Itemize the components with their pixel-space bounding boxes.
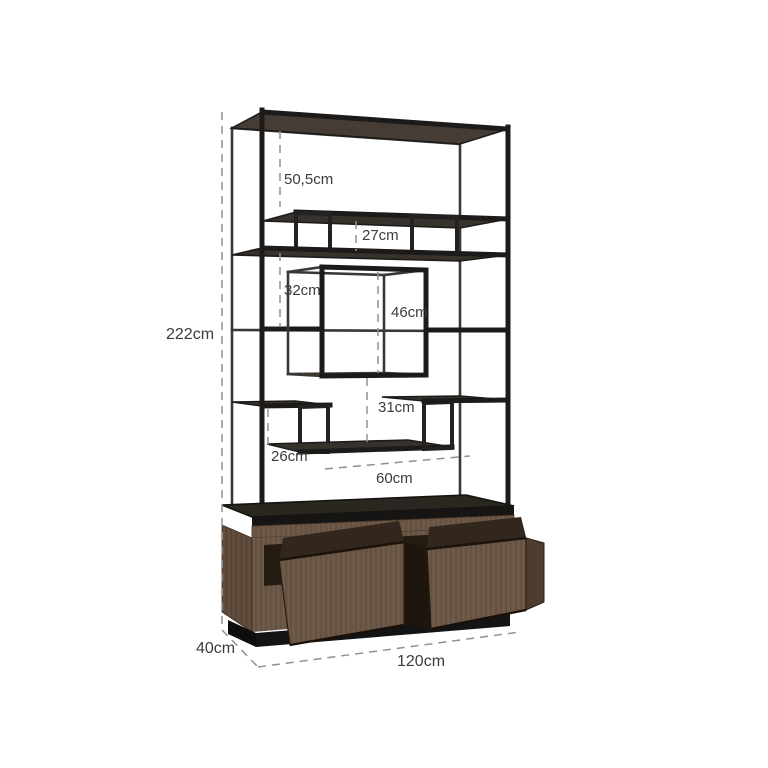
dim-label-below-cube: 31cm [378,399,415,416]
dim-label-shelf-width: 60cm [376,470,413,487]
dim-label-middle-opening: 32cm [284,282,321,299]
right-drawer-side [526,538,544,610]
right-platform-edge [424,400,508,401]
dim-label-top-opening: 50,5cm [284,171,333,188]
cube-front [322,267,426,376]
cabinet-left-side [222,525,252,632]
product-dimension-diagram: 222cm 50,5cm 27cm 32cm 46cm 31cm 26cm 60… [0,0,768,768]
dim-shelf-width-line [325,456,470,469]
furniture-illustration: 222cm 50,5cm 27cm 32cm 46cm 31cm 26cm 60… [0,0,768,768]
dim-label-width: 120cm [397,653,445,670]
lower-right-support [424,402,452,449]
dim-label-height: 222cm [166,326,214,343]
right-drawer [427,517,544,629]
base-cabinet [222,495,544,647]
right-drawer-front [427,538,526,629]
dim-label-lower-opening: 26cm [271,448,308,465]
dim-label-depth: 40cm [196,640,235,657]
left-drawer [279,521,404,645]
dim-label-bridge-opening: 27cm [362,227,399,244]
dim-label-cube: 46cm [391,304,428,321]
